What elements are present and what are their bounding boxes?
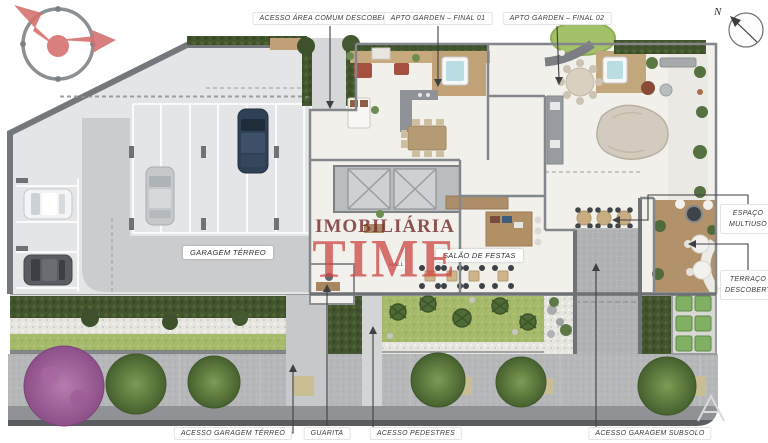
callout-label: APTO GARDEN – FINAL 01	[391, 15, 486, 22]
pedestrian-path	[362, 294, 382, 406]
uncovered-terrace	[652, 199, 717, 292]
floorplan-image: ACESSO ÁREA COMUM DESCOBERTA APTO GARDEN…	[0, 0, 768, 443]
callout-label: ESPAÇO MULTIUSO	[729, 210, 767, 228]
north-compass-icon	[729, 13, 763, 47]
callout-apto-garden-final-01: APTO GARDEN – FINAL 01	[384, 12, 493, 25]
parked-car-white	[24, 189, 72, 219]
stair-core	[334, 166, 460, 212]
north-letter: N	[714, 6, 721, 18]
callout-espaco-multiuso: ESPAÇO MULTIUSO	[720, 204, 768, 234]
callout-label: ACESSO ÁREA COMUM DESCOBERTA	[259, 15, 396, 22]
callout-apto-garden-final-02: APTO GARDEN – FINAL 02	[503, 12, 612, 25]
callout-label: ACESSO GARAGEM TÉRREO	[181, 430, 285, 437]
area-label-text: HALL	[389, 262, 404, 268]
hall-label: HALL	[386, 261, 407, 269]
callout-label: TERRAÇO DESCOBERTO	[725, 276, 768, 294]
callout-label: GUARITA	[311, 430, 344, 437]
parked-car-dark	[24, 255, 72, 285]
guardhouse	[310, 264, 354, 304]
parked-car-blue	[238, 109, 268, 173]
zen-garden	[544, 296, 575, 354]
callout-label: APTO GARDEN – FINAL 02	[510, 15, 605, 22]
callout-guarita: GUARITA	[304, 427, 351, 440]
callout-label: ACESSO PEDESTRES	[377, 430, 455, 437]
party-room-label: SALÃO DE FESTAS	[436, 249, 523, 262]
callout-acesso-pedestres: ACESSO PEDESTRES	[370, 427, 462, 440]
loungers-area	[672, 292, 716, 354]
hall-sideboard	[364, 224, 384, 233]
parked-car-silver	[146, 167, 174, 225]
callout-label: ACESSO GARAGEM SUBSOLO	[595, 430, 704, 437]
callout-terraco-descoberto: TERRAÇO DESCOBERTO	[720, 270, 768, 300]
callout-acesso-garagem-terreo: ACESSO GARAGEM TÉRREO	[174, 427, 292, 440]
purple-tree	[24, 346, 104, 426]
site-plan-graphic	[0, 0, 768, 443]
garage-area-label: GARAGEM TÉRREO	[183, 246, 273, 259]
callout-acesso-area-comum: ACESSO ÁREA COMUM DESCOBERTA	[252, 12, 403, 25]
area-label-text: SALÃO DE FESTAS	[443, 251, 516, 260]
callout-acesso-garagem-subsolo: ACESSO GARAGEM SUBSOLO	[588, 427, 711, 440]
area-label-text: GARAGEM TÉRREO	[190, 248, 266, 257]
